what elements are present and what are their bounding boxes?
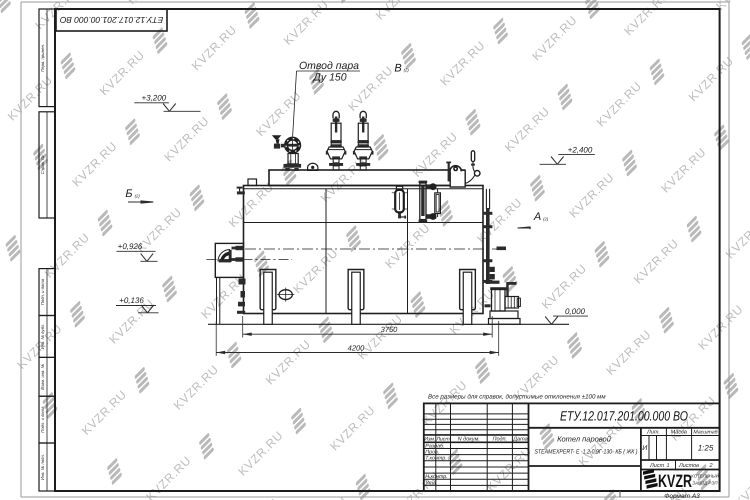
svg-text:Подп.: Подп. [492, 436, 507, 442]
svg-text:STEAMEXPERT- Е -1,2-0,9Г-130-: STEAMEXPERT- Е -1,2-0,9Г-130- КБ ( ЖК ) [535, 449, 638, 456]
svg-text:KVZR: KVZR [658, 471, 692, 491]
svg-text:ЕТУ.12.017.201.00.000 ВО: ЕТУ.12.017.201.00.000 ВО [59, 15, 163, 25]
svg-text:(2): (2) [543, 217, 549, 222]
svg-text:Масса: Масса [671, 430, 687, 436]
svg-text:Котел паровой: Котел паровой [557, 435, 612, 444]
svg-text:Отвод пара: Отвод пара [299, 60, 359, 72]
svg-text:N докум.: N докум. [458, 436, 480, 442]
svg-text:Инв. № дубл.: Инв. № дубл. [40, 324, 45, 350]
svg-text:3750: 3750 [381, 325, 399, 334]
svg-text:Взам. инв. №: Взам. инв. № [40, 363, 45, 389]
svg-text:Ду 150: Ду 150 [312, 71, 346, 83]
svg-text:Масштаб: Масштаб [693, 430, 718, 436]
svg-text:+0,926: +0,926 [118, 242, 143, 251]
svg-text:Подп. и дата: Подп. и дата [40, 278, 45, 305]
svg-text:Лит.: Лит. [646, 430, 660, 436]
svg-text:Перв. примен.: Перв. примен. [40, 44, 45, 72]
svg-text:Лист: Лист [649, 463, 665, 469]
svg-text:0,000: 0,000 [565, 307, 586, 316]
svg-text:2: 2 [708, 463, 712, 469]
svg-text:Справ. №: Справ. № [40, 155, 45, 174]
svg-text:Формат А3: Формат А3 [664, 493, 700, 500]
svg-text:Пров.: Пров. [425, 450, 439, 456]
svg-text:А: А [533, 211, 541, 223]
svg-text:Н.контр.: Н.контр. [425, 474, 447, 480]
svg-text:Инв. № подл.: Инв. № подл. [40, 454, 45, 480]
svg-text:ЗАВОД РЭП: ЗАВОД РЭП [692, 481, 718, 486]
svg-text:Изм.: Изм. [424, 436, 435, 442]
svg-text:Разраб.: Разраб. [425, 443, 444, 449]
svg-text:КОТЕЛЬНЫЙ: КОТЕЛЬНЫЙ [691, 474, 719, 479]
svg-text:+0,136: +0,136 [119, 296, 144, 305]
svg-text:Листов: Листов [678, 463, 699, 469]
svg-text:Б: Б [125, 188, 132, 200]
svg-text:Т.контр.: Т.контр. [425, 456, 446, 462]
svg-text:1:25: 1:25 [698, 444, 714, 453]
svg-text:+2,400: +2,400 [568, 145, 593, 154]
svg-text:+3,200: +3,200 [141, 94, 166, 103]
svg-text:Лист: Лист [435, 436, 450, 442]
svg-text:Дата: Дата [512, 436, 528, 442]
svg-text:Подп. и дата: Подп. и дата [40, 406, 45, 433]
svg-text:(2): (2) [404, 68, 410, 73]
svg-text:(2): (2) [135, 194, 141, 199]
svg-text:4200: 4200 [348, 343, 366, 352]
svg-text:В: В [394, 63, 401, 75]
svg-text:Утв.: Утв. [425, 480, 437, 486]
svg-text:Все размеры для справок, допус: Все размеры для справок, допустимые откл… [428, 394, 606, 401]
svg-text:ЕТУ.12.017.201.00.000 ВО: ЕТУ.12.017.201.00.000 ВО [560, 409, 688, 424]
svg-text:1: 1 [666, 463, 669, 469]
